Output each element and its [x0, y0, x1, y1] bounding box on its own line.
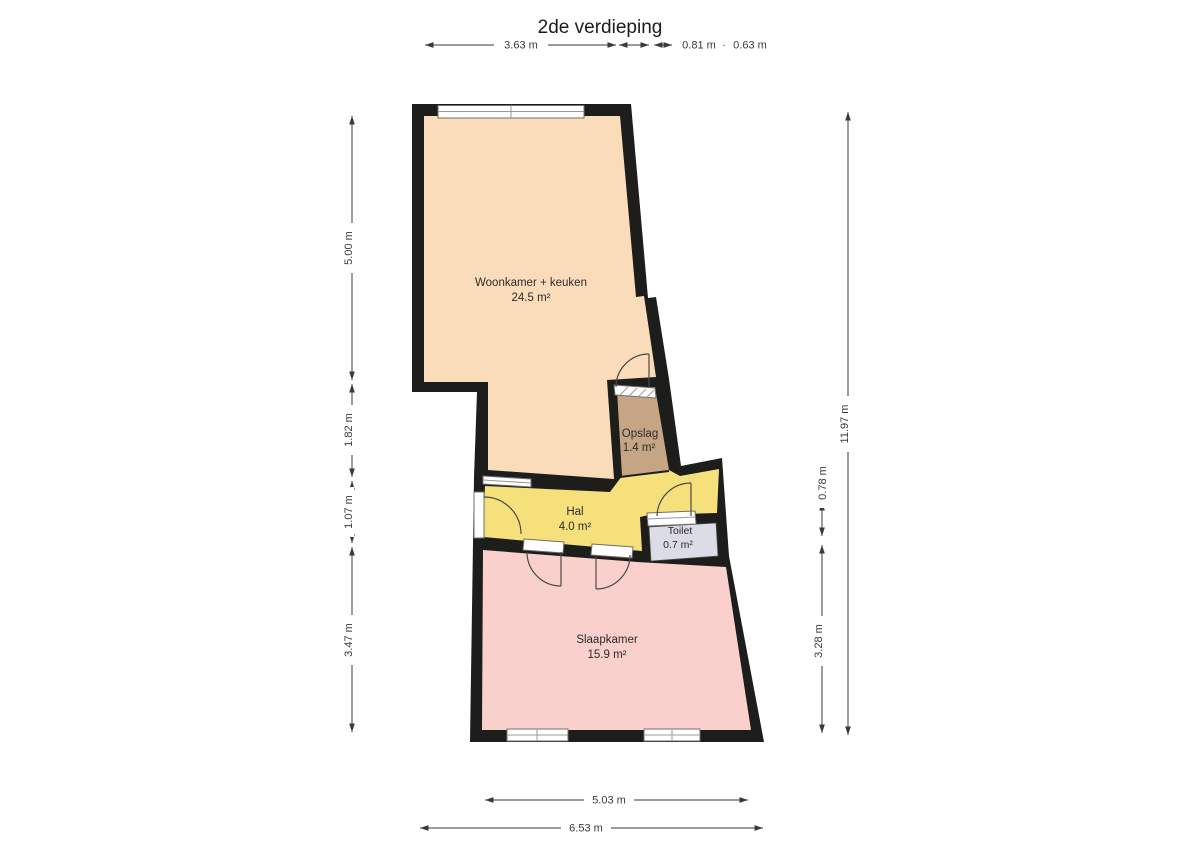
room-slaapkamer-area: 15.9 m²: [588, 649, 627, 661]
dim-left-d3: 1.07 m: [343, 495, 355, 529]
room-toilet-label: Toilet: [668, 525, 693, 537]
dim-left-d2: 1.82 m: [343, 413, 355, 447]
window-top: [438, 106, 584, 119]
dim-top-sep: ·: [722, 40, 726, 52]
dim-top-d3: 0.63 m: [733, 40, 767, 52]
room-slaapkamer-label: Slaapkamer: [576, 634, 638, 646]
room-opslag-area: 1.4 m²: [623, 442, 656, 454]
dim-top: 3.63 m 0.81 m · 0.63 m: [425, 38, 767, 52]
room-toilet-area: 0.7 m²: [663, 539, 693, 551]
dim-left-d1: 5.00 m: [343, 231, 355, 265]
dim-bottom: 5.03 m 6.53 m: [420, 793, 763, 835]
dim-right: 11.97 m 0.78 m 3.28 m: [811, 112, 851, 735]
window-toilet-sill: [647, 511, 696, 526]
dim-right-total: 11.97 m: [839, 405, 851, 444]
window-bottom-right: [644, 729, 700, 741]
dim-left: 5.00 m 1.82 m 1.07 m 3.47 m: [341, 116, 355, 732]
window-bottom-left: [507, 729, 568, 741]
floorplan-page: 2de verdieping: [0, 0, 1200, 849]
room-woonkamer-label: Woonkamer + keuken: [475, 277, 587, 289]
room-opslag-label: Opslag: [622, 428, 658, 440]
dim-top-d2: 0.81 m: [682, 40, 716, 52]
dim-bottom-total: 6.53 m: [569, 823, 603, 835]
floorplan-svg: 2de verdieping: [0, 0, 1200, 849]
room-hal-area: 4.0 m²: [559, 521, 592, 533]
dim-top-d1: 3.63 m: [504, 40, 538, 52]
room-woonkamer-area: 24.5 m²: [512, 292, 551, 304]
dim-right-d2: 3.28 m: [813, 624, 825, 658]
page-title: 2de verdieping: [538, 17, 663, 38]
room-hal-label: Hal: [566, 506, 583, 518]
dim-right-d1: 0.78 m: [817, 466, 829, 500]
dim-left-d4: 3.47 m: [343, 623, 355, 657]
dim-bottom-inner: 5.03 m: [592, 795, 626, 807]
